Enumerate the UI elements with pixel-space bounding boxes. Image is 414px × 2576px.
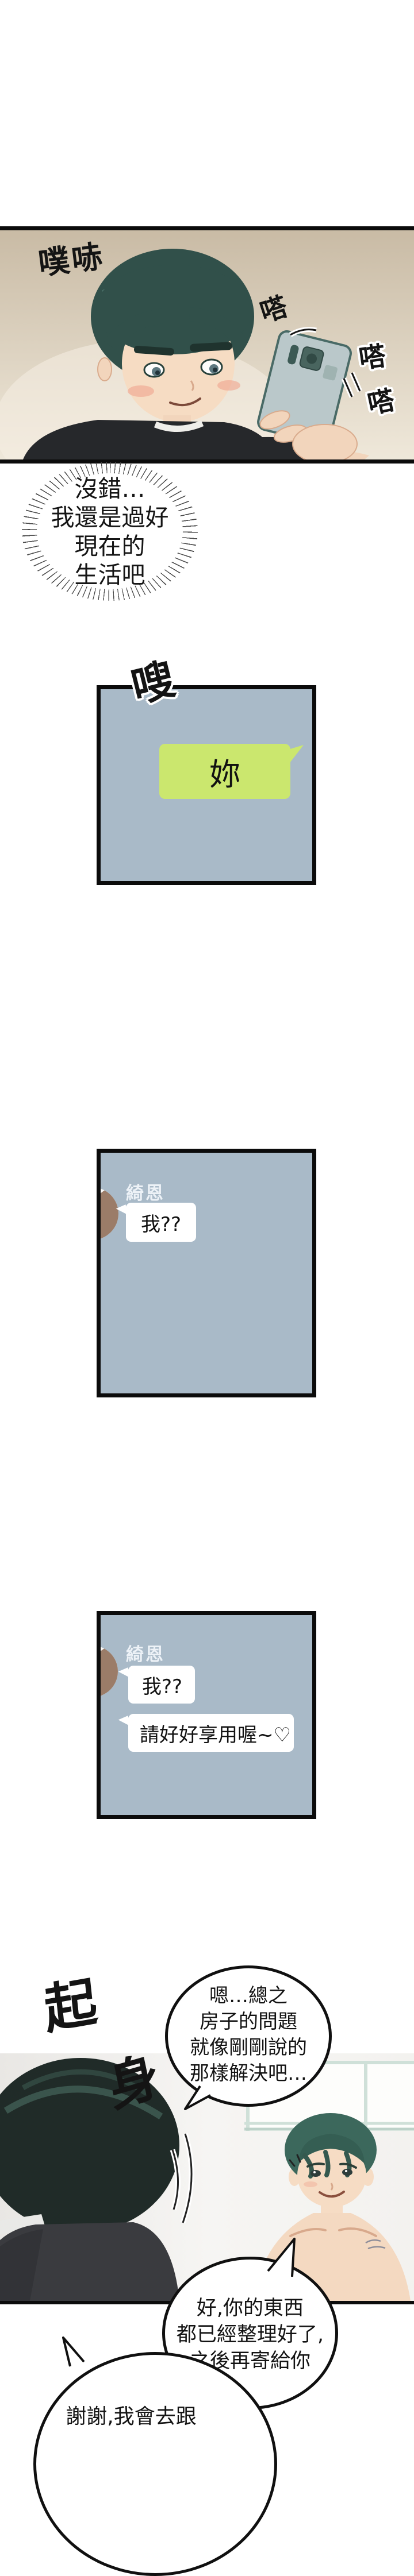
avatar-hair bbox=[97, 1187, 118, 1240]
speech-line: 謝謝,我會去跟 bbox=[48, 2400, 214, 2430]
message-text: 我?? bbox=[128, 1671, 182, 1699]
thought-bubble: 沒錯… 我還是過好 現在的 生活吧 bbox=[22, 462, 198, 601]
avatar-hair bbox=[97, 1646, 118, 1697]
message-text: 妳 bbox=[209, 749, 240, 794]
message-bubble-received: 我?? bbox=[126, 1203, 196, 1242]
avatar bbox=[97, 1646, 118, 1697]
sfx-tap-text: 嗒 bbox=[356, 335, 388, 376]
eye bbox=[310, 2170, 321, 2177]
message-text: 我?? bbox=[126, 1208, 181, 1237]
pupil-right bbox=[213, 368, 217, 372]
sfx-rise-text: 起 bbox=[40, 1959, 101, 2044]
speech-line: 房子的問題 bbox=[168, 2009, 329, 2035]
message-bubble-received: 我?? bbox=[128, 1666, 195, 1704]
thought-line: 生活吧 bbox=[22, 561, 198, 589]
sender-name: 綺恩 bbox=[126, 1179, 165, 1204]
bubble-tail bbox=[286, 745, 305, 763]
speech-line: 就像剛剛說的 bbox=[168, 2035, 329, 2061]
message-bubble-received: 請好好享用喔~♡ bbox=[128, 1714, 294, 1752]
hand bbox=[293, 424, 357, 459]
chat-panel-3: 綺恩 我?? 請好好享用喔~♡ bbox=[97, 1611, 316, 1819]
blush-right bbox=[217, 380, 240, 391]
ear bbox=[98, 358, 112, 381]
eye-highlight bbox=[345, 2170, 347, 2172]
message-bubble-sent: 妳 bbox=[159, 744, 290, 799]
webtoon-page: { "page": {"width": 720, "height": 4200,… bbox=[0, 0, 414, 2412]
thought-line: 我還是過好 bbox=[22, 503, 198, 532]
chat-panel-2: 綺恩 我?? bbox=[97, 1149, 316, 1397]
speech-balloon-3: 謝謝,我會去跟 bbox=[33, 2352, 277, 2576]
sfx-chuckle-text: 噗哧 bbox=[36, 230, 108, 284]
speech-line: 都已經整理好了, bbox=[165, 2322, 335, 2348]
speech-line: 嗯…總之 bbox=[168, 1983, 329, 2009]
thought-line: 沒錯… bbox=[22, 474, 198, 503]
eye-highlight bbox=[313, 2171, 316, 2173]
thought-text: 沒錯… 我還是過好 現在的 生活吧 bbox=[22, 474, 198, 589]
pupil-left bbox=[155, 370, 160, 375]
message-text: 請好好享用喔~♡ bbox=[128, 1719, 291, 1747]
blush-left bbox=[128, 385, 154, 397]
speech-line: 好,你的東西 bbox=[165, 2295, 335, 2322]
blush bbox=[304, 2181, 317, 2187]
sender-name: 綺恩 bbox=[126, 1640, 165, 1666]
hair-strand bbox=[325, 2152, 328, 2175]
eye bbox=[342, 2169, 352, 2176]
thought-line: 現在的 bbox=[22, 532, 198, 561]
balloon-tail bbox=[172, 2078, 218, 2114]
balloon-tail bbox=[260, 2232, 306, 2281]
balloon-tail bbox=[57, 2334, 98, 2371]
avatar bbox=[97, 1187, 118, 1240]
chat-panel-1: 妳 bbox=[97, 685, 316, 885]
